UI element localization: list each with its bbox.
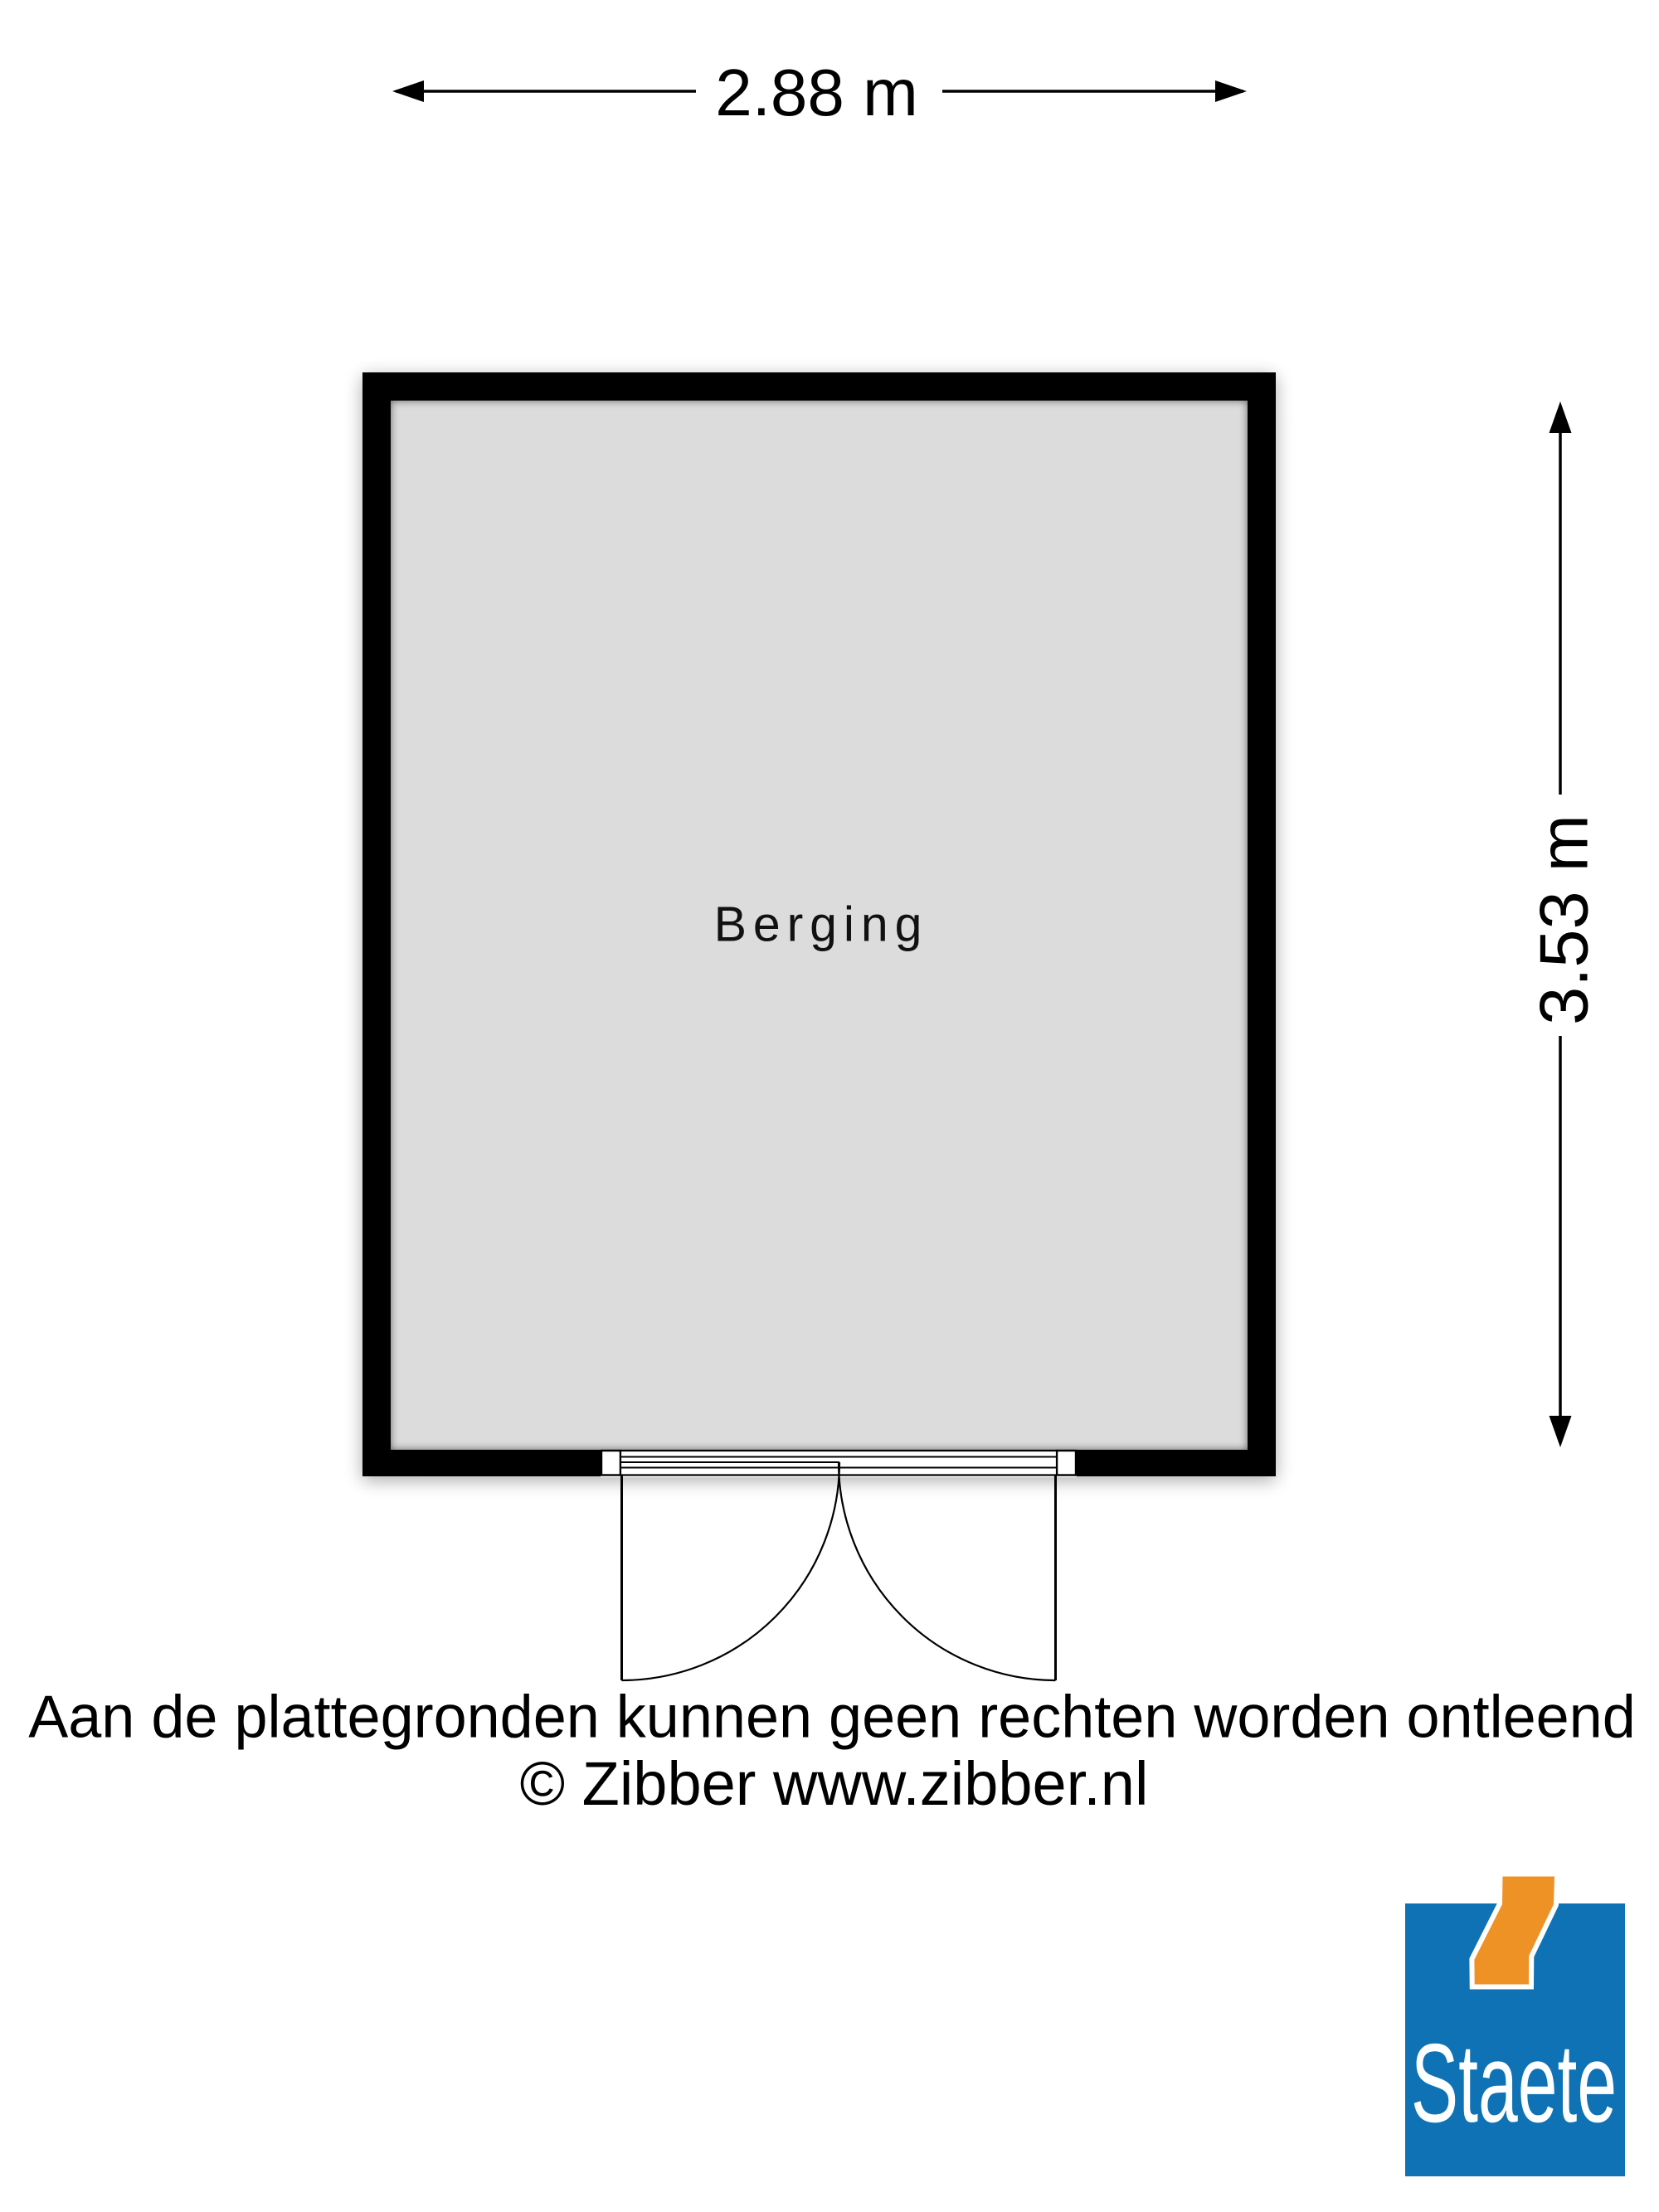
svg-text:© Zibber www.zibber.nl: © Zibber www.zibber.nl (520, 1749, 1149, 1818)
svg-text:Aan de plattegronden kunnen ge: Aan de plattegronden kunnen geen rechten… (28, 1685, 1636, 1751)
svg-text:Staete: Staete (1411, 2020, 1617, 2145)
svg-text:2.88 m: 2.88 m (715, 56, 918, 129)
svg-text:3.53 m: 3.53 m (1525, 814, 1603, 1025)
svg-text:Berging: Berging (714, 897, 929, 952)
